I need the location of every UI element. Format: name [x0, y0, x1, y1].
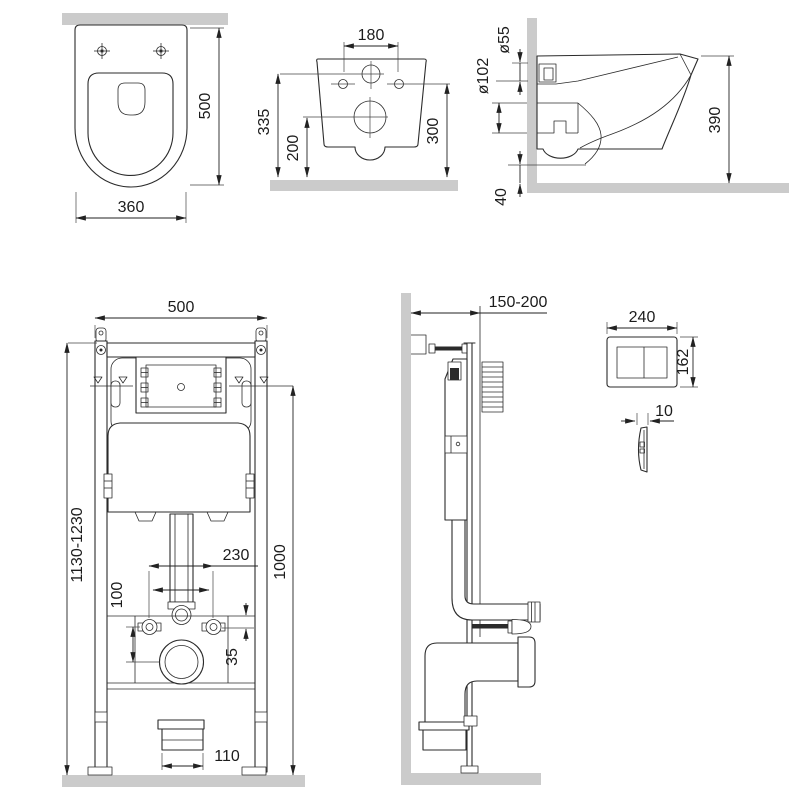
dim-label-100: 100	[109, 582, 126, 609]
dim-stud-spacing: 230	[149, 547, 258, 618]
dim-label-frame-500: 500	[168, 299, 195, 316]
dim-frame-width: 500	[95, 299, 267, 338]
dim-label-360: 360	[118, 199, 145, 216]
flush-pipe	[170, 514, 193, 602]
dim-label-1130-1230: 1130-1230	[69, 507, 86, 582]
stud-side	[472, 624, 510, 629]
dim-label-d55: ø55	[496, 26, 513, 54]
dim-label-10: 10	[655, 403, 673, 420]
toilet-top-view: 500 360	[62, 13, 228, 223]
toilet-profile	[537, 54, 698, 158]
dim-bolt-height: 300	[425, 84, 447, 177]
dim-drain-height: 200	[285, 118, 307, 177]
flush-opening	[118, 83, 145, 115]
dim-body-height: 390	[701, 56, 734, 183]
mounting-mark-right	[153, 43, 169, 59]
dim-label-180: 180	[358, 27, 385, 44]
floor-surface	[401, 773, 541, 785]
toilet-rear-view: 180 335 200 300	[256, 27, 458, 191]
dim-flush-pipe-height: 1000	[272, 386, 293, 775]
dim-floor-clearance: 40	[493, 151, 586, 206]
dim-label-40: 40	[493, 188, 510, 206]
dim-label-230: 230	[223, 547, 250, 564]
dim-plate-thickness: 10	[621, 403, 674, 425]
dim-outlet-width: 110	[162, 748, 240, 770]
flush-plate-view: 240 162 10	[607, 309, 698, 472]
outlet-pipe	[162, 729, 203, 750]
drain-socket	[423, 730, 466, 750]
dim-label-335: 335	[256, 109, 273, 136]
dimension-diagram: 500 360 180	[0, 0, 800, 800]
dim-stud-offset: 35	[222, 603, 254, 666]
floor-surface	[270, 180, 458, 191]
flush-plate	[607, 337, 677, 387]
flush-plate-side	[639, 427, 648, 472]
technical-drawing-page: 500 360 180	[0, 0, 800, 800]
dim-frame-height: 1130-1230	[67, 343, 97, 775]
dim-flush-diameter: ø55	[496, 26, 528, 95]
foot-left	[88, 767, 112, 775]
dim-label-240: 240	[629, 309, 656, 326]
flush-bend-pipe	[452, 520, 540, 620]
flush-bend-coupling	[172, 606, 191, 625]
foot-right	[242, 767, 266, 775]
dim-plate-width: 240	[607, 309, 677, 334]
top-crossbar	[107, 343, 255, 357]
cistern-tank	[108, 423, 250, 512]
dim-label-150-200: 150-200	[489, 294, 548, 311]
dim-label-162: 162	[675, 349, 692, 376]
frame-rail-right	[255, 341, 267, 772]
dim-install-depth: 150-200	[411, 294, 547, 313]
mounting-mark-left	[94, 43, 110, 59]
cistern-tab-left	[135, 512, 156, 521]
drain-opening	[160, 640, 204, 684]
dim-label-1000: 1000	[272, 544, 289, 580]
dim-plate-height: 162	[675, 337, 698, 387]
dim-label-110: 110	[214, 748, 240, 765]
wall-surface	[527, 18, 537, 183]
dim-label-500: 500	[197, 93, 214, 120]
foot	[461, 766, 478, 773]
floor-surface	[62, 775, 305, 787]
dim-flush-height: 335	[256, 74, 278, 177]
toilet-side-view: ø55 ø102 40 390	[475, 18, 789, 206]
drain-bell	[518, 637, 535, 687]
dim-toilet-height: 500	[190, 28, 224, 185]
cistern-tab-right	[207, 512, 228, 521]
floor-surface	[527, 183, 789, 193]
dim-label-200: 200	[285, 135, 302, 162]
drain-socket-flange	[419, 722, 469, 730]
frame-side-view: 150-200	[401, 293, 547, 785]
frame-rail-left	[95, 341, 107, 772]
flush-pipe-cap	[528, 602, 540, 622]
dim-label-35: 35	[224, 648, 241, 666]
bracket-rod	[435, 347, 463, 351]
wall-surface	[401, 293, 411, 773]
water-supply-connector	[482, 362, 503, 412]
dim-toilet-width: 360	[76, 192, 186, 223]
wall-bracket	[411, 335, 426, 354]
frame-front-view: 500 1130-1230 1000 230 100	[62, 299, 305, 787]
mounting-stud-left	[138, 620, 161, 635]
toilet-outline	[75, 25, 187, 187]
dim-label-300: 300	[425, 118, 442, 145]
dim-outlet-diameter: ø102	[475, 58, 527, 133]
seat-outline	[88, 73, 173, 175]
dim-label-d102: ø102	[475, 58, 492, 95]
dim-label-390: 390	[707, 107, 724, 134]
mounting-stud-right	[202, 620, 225, 635]
wall-surface	[62, 13, 228, 25]
outlet-flange	[158, 720, 204, 729]
